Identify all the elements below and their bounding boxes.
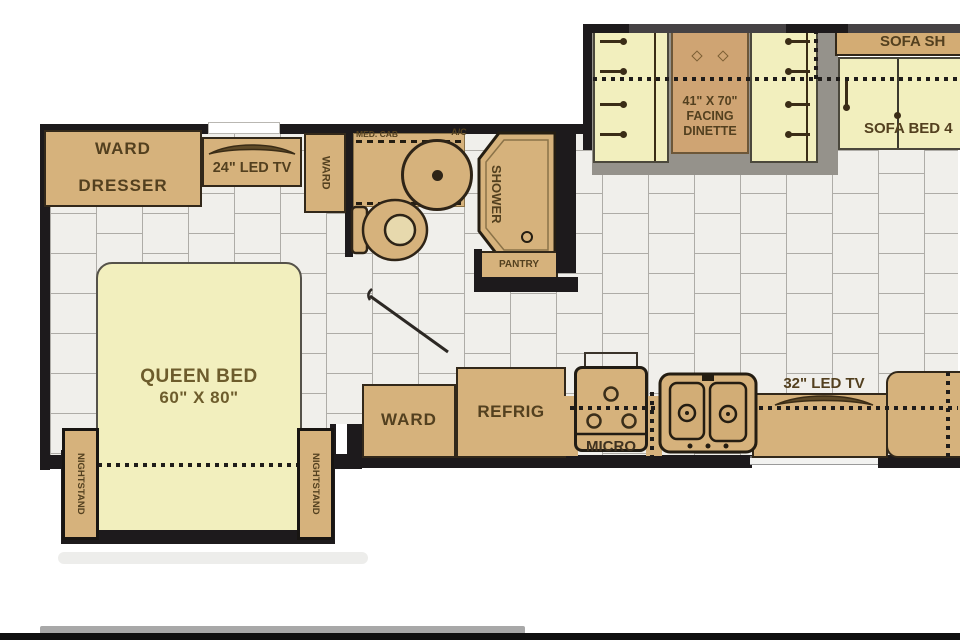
sofa-bed-label: SOFA BED 4 xyxy=(864,120,960,138)
nightstand-left-label: NIGHTSTAND xyxy=(75,453,86,515)
ward-closet: WARD xyxy=(304,133,346,213)
nightstand-right-label: NIGHTSTAND xyxy=(310,453,321,515)
bottom-black-bar xyxy=(0,633,960,640)
wall-pantry-left xyxy=(474,249,482,279)
bench-cushion-line xyxy=(806,32,808,161)
bed-slideout-dotted-line xyxy=(98,463,300,467)
window-opening xyxy=(208,122,280,134)
seat-mark-dot xyxy=(785,38,792,45)
seat-mark-dot xyxy=(620,101,627,108)
tv24-icon xyxy=(206,141,298,157)
seat-mark-dot xyxy=(785,68,792,75)
dinette-slideout-wall-cap-right xyxy=(786,24,848,33)
seat-mark-dot xyxy=(785,131,792,138)
wall-pantry-bottom xyxy=(474,277,578,292)
seat-mark-dot xyxy=(620,131,627,138)
seat-mark xyxy=(600,103,622,106)
ac-label: A/C xyxy=(446,127,472,138)
slideout-shadow xyxy=(58,552,368,564)
toilet-icon xyxy=(349,196,433,266)
refrigerator-label: REFRIG xyxy=(456,402,566,422)
dinette-label-line1: 41" X 70" xyxy=(664,94,756,109)
tv24-label: 24" LED TV xyxy=(202,160,302,177)
slideout-edge-dotted-line xyxy=(814,30,818,80)
dinette-bench-left xyxy=(593,30,669,163)
sofa-shelf-label: SOFA SH xyxy=(880,33,960,51)
wall-shower-right xyxy=(556,131,576,273)
ward-closet-label: WARD xyxy=(318,156,331,190)
dinette-slideout-wall-top xyxy=(583,24,960,33)
dinette-label-line3: DINETTE xyxy=(664,124,756,139)
bath-sink-drain xyxy=(432,170,443,181)
seat-mark-dot xyxy=(620,38,627,45)
seat-mark xyxy=(600,70,622,73)
dinette-label: 41" X 70" FACING DINETTE xyxy=(664,94,756,139)
seat-mark xyxy=(600,133,622,136)
dinette-slideout-dotted-line xyxy=(593,77,960,81)
floorplan-canvas: QUEEN BED 60" X 80" 41" X 70" FACING DIN… xyxy=(0,0,960,640)
pantry: PANTRY xyxy=(480,251,558,279)
ward-dresser-label-1: WARD xyxy=(44,139,202,159)
bed-slideout-wall-bottom xyxy=(61,530,335,544)
right-edge-dotted-line xyxy=(946,372,950,458)
bench-cushion-line xyxy=(654,32,656,161)
pantry-label: PANTRY xyxy=(499,259,539,271)
micro-label: MICRO xyxy=(572,438,650,456)
queen-bed-label-line1: QUEEN BED xyxy=(96,366,302,388)
bath-door-swing xyxy=(362,286,454,358)
shower-label: SHOWER xyxy=(488,165,504,224)
seat-mark-dot xyxy=(785,101,792,108)
queen-bed-label: QUEEN BED 60" X 80" xyxy=(96,366,302,408)
seat-mark-dot xyxy=(894,112,901,119)
seat-mark-dot xyxy=(620,68,627,75)
ward-kitchen-label: WARD xyxy=(362,410,456,430)
shower-label-wrap: SHOWER xyxy=(484,142,508,246)
nightstand-right: NIGHTSTAND xyxy=(297,428,334,540)
seat-mark xyxy=(845,80,848,106)
seat-mark-dot xyxy=(843,104,850,111)
kitchen-sink xyxy=(658,372,758,456)
med-cab-label: MED. CAB xyxy=(356,129,418,139)
nightstand-left: NIGHTSTAND xyxy=(62,428,99,540)
step-notch xyxy=(336,424,347,454)
queen-bed-label-line2: 60" X 80" xyxy=(96,388,302,408)
counter-slideout-dotted-line xyxy=(570,406,958,410)
micro-dotted-line xyxy=(650,392,654,464)
ward-dresser-label-2: DRESSER xyxy=(44,176,202,196)
tv32-icon xyxy=(772,391,876,409)
seat-mark xyxy=(600,40,622,43)
dinette-label-line2: FACING xyxy=(664,109,756,124)
dinette-slideout-wall-left xyxy=(583,24,592,150)
